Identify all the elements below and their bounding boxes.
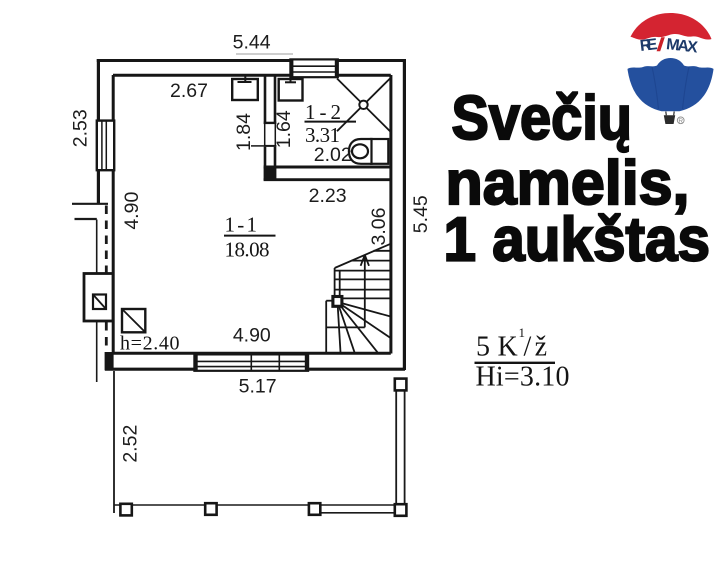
svg-text:4.90: 4.90 — [121, 192, 143, 230]
svg-text:2.67: 2.67 — [170, 80, 208, 102]
svg-text:3.31: 3.31 — [305, 123, 340, 147]
svg-text:5: 5 — [476, 332, 490, 363]
svg-text:2.02: 2.02 — [314, 144, 352, 166]
svg-text:5.44: 5.44 — [233, 31, 271, 53]
svg-text:18.08: 18.08 — [225, 238, 270, 262]
svg-text:K: K — [498, 332, 518, 363]
svg-text:5.45: 5.45 — [410, 195, 432, 233]
svg-text:2.52: 2.52 — [120, 425, 142, 463]
svg-text:/ž: /ž — [524, 332, 548, 363]
svg-text:Svečių: Svečių — [452, 84, 633, 153]
svg-text:MAX: MAX — [665, 36, 699, 56]
svg-text:1.64: 1.64 — [273, 110, 295, 148]
svg-text:3.06: 3.06 — [368, 208, 390, 246]
svg-text:1 - 2: 1 - 2 — [305, 100, 341, 124]
svg-text:1.84: 1.84 — [233, 113, 255, 151]
svg-text:2.23: 2.23 — [309, 185, 347, 207]
svg-text:5.17: 5.17 — [239, 375, 277, 397]
svg-text:RE: RE — [639, 36, 659, 55]
svg-text:R: R — [678, 118, 683, 125]
svg-text:4.90: 4.90 — [233, 325, 271, 347]
svg-text:h=2.40: h=2.40 — [120, 333, 180, 355]
svg-text:Hi=3.10: Hi=3.10 — [476, 362, 570, 393]
svg-text:1 - 1: 1 - 1 — [225, 213, 258, 237]
svg-text:1 aukštas: 1 aukštas — [444, 206, 711, 275]
svg-text:2.53: 2.53 — [69, 109, 91, 147]
